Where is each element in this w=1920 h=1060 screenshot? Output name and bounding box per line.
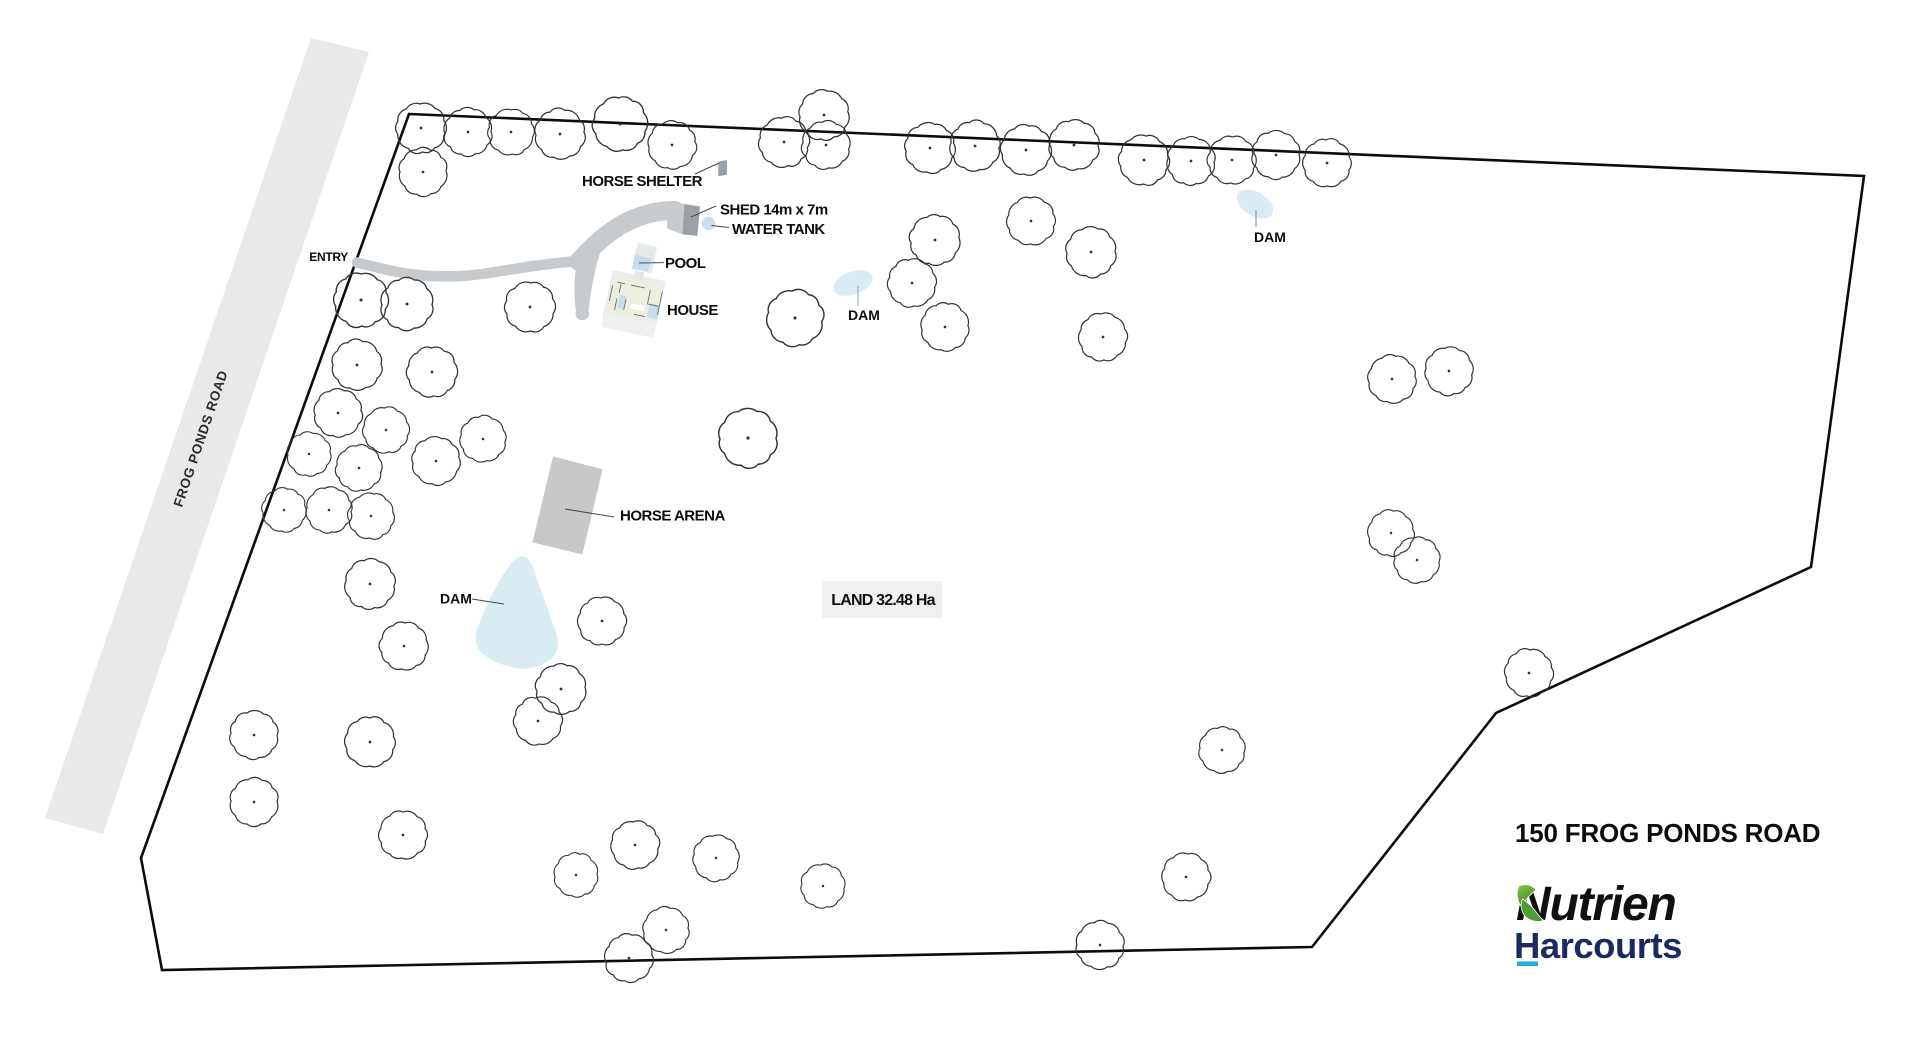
svg-text:POOL: POOL (665, 255, 706, 272)
svg-text:DAM: DAM (848, 307, 880, 323)
svg-text:WATER TANK: WATER TANK (732, 221, 825, 238)
svg-text:ENTRY: ENTRY (309, 250, 348, 264)
svg-text:Harcourts: Harcourts (1514, 925, 1682, 966)
svg-text:150 FROG PONDS ROAD: 150 FROG PONDS ROAD (1515, 818, 1820, 848)
svg-text:DAM: DAM (1254, 229, 1286, 245)
svg-text:DAM: DAM (440, 591, 472, 607)
svg-text:Nutrien: Nutrien (1516, 878, 1676, 931)
svg-text:HORSE ARENA: HORSE ARENA (620, 508, 725, 525)
svg-text:HOUSE: HOUSE (667, 302, 718, 319)
svg-text:SHED 14m x 7m: SHED 14m x 7m (720, 202, 828, 219)
svg-text:LAND 32.48 Ha: LAND 32.48 Ha (831, 592, 935, 609)
svg-text:HORSE SHELTER: HORSE SHELTER (582, 173, 703, 190)
